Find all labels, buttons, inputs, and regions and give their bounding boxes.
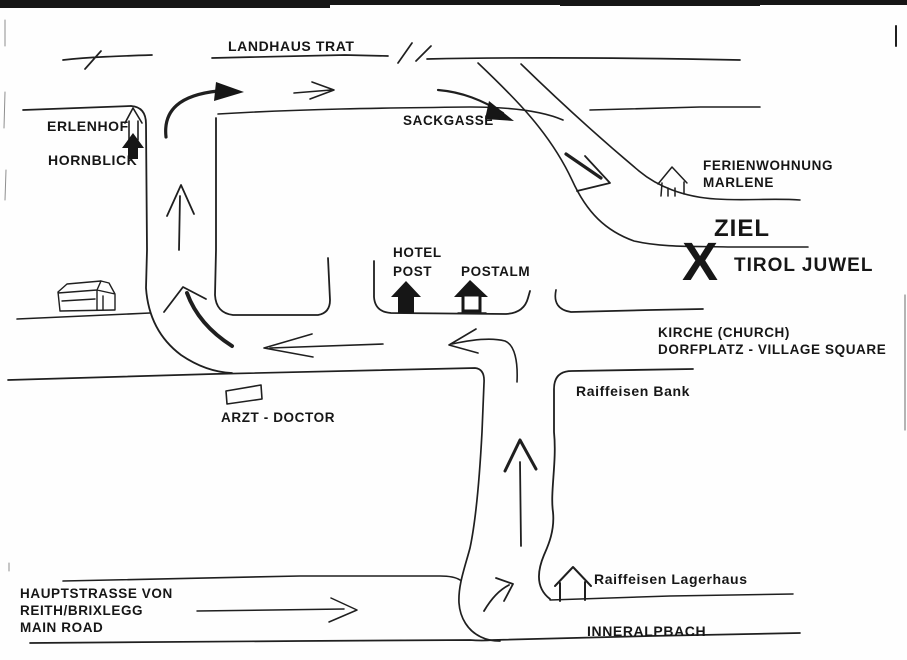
- destination-x-mark: X: [682, 232, 719, 292]
- building-icons: [58, 108, 687, 601]
- road-kirche-top-edge: [555, 290, 703, 312]
- label-sackgasse: SACKGASSE: [403, 113, 494, 128]
- label-arzt-doctor: ARZT - DOCTOR: [221, 410, 335, 425]
- road-main-top-edge: [63, 576, 460, 581]
- map-labels: LANDHAUS TRAT ERLENHOF HORNBLICK SACKGAS…: [20, 38, 886, 639]
- label-main-road: MAIN ROAD: [20, 620, 103, 635]
- label-postalm: POSTALM: [461, 264, 530, 279]
- label-dorfplatz: DORFPLATZ - VILLAGE SQUARE: [658, 342, 886, 357]
- label-ziel: ZIEL: [714, 215, 770, 242]
- arrow-south-road-up: [505, 440, 536, 546]
- road-inneralpbach-upper-edge: [550, 594, 793, 600]
- map-canvas: LANDHAUS TRAT ERLENHOF HORNBLICK SACKGAS…: [0, 0, 907, 660]
- barn-sketch-icon: [58, 281, 115, 311]
- road-middle-upper: [218, 107, 563, 120]
- road-south-road-east-edge: [539, 369, 693, 599]
- house-sketch-icon-lagerhaus: [555, 567, 591, 601]
- arrow-loop-up: [167, 185, 194, 250]
- label-kirche: KIRCHE (CHURCH): [658, 325, 790, 340]
- label-reith-brixlegg: REITH/BRIXLEGG: [20, 603, 143, 618]
- label-ferienwohnung: FERIENWOHNUNG: [703, 158, 833, 173]
- house-sketch-icon-marlene: [658, 167, 687, 196]
- label-hornblick: HORNBLICK: [48, 152, 137, 168]
- road-dorfplatz-top-west: [17, 313, 150, 319]
- arrow-loop-curve-up-bold: [164, 287, 232, 346]
- house-filled-icon-hotel-post: [391, 281, 421, 313]
- label-post: POST: [393, 264, 432, 279]
- label-hauptstrasse-von: HAUPTSTRASSE VON: [20, 586, 173, 601]
- label-tirol-juwel: TIROL JUWEL: [734, 255, 873, 276]
- road-upper-left: [23, 106, 131, 110]
- road-middle-block: [215, 118, 330, 315]
- road-upper-right: [590, 107, 760, 110]
- label-erlenhof: ERLENHOF: [47, 118, 129, 134]
- arrow-descent-southeast: [566, 154, 610, 191]
- label-raiffeisen-lagerhaus: Raiffeisen Lagerhaus: [594, 571, 748, 587]
- scan-edge-artifacts: [0, 0, 907, 571]
- road-top-landhaus-trat: [63, 43, 740, 69]
- label-raiffeisen-bank: Raiffeisen Bank: [576, 383, 690, 399]
- label-marlene: MARLENE: [703, 175, 774, 190]
- arrow-loop-top-right: [166, 82, 244, 137]
- hand-drawn-directions-map: LANDHAUS TRAT ERLENHOF HORNBLICK SACKGAS…: [0, 0, 907, 660]
- label-landhaus-trat: LANDHAUS TRAT: [228, 38, 355, 54]
- building-rect-icon-arzt: [226, 385, 262, 404]
- label-inneralpbach: INNERALPBACH: [587, 623, 706, 639]
- house-icon-postalm: [454, 280, 488, 313]
- arrow-bend-northeast: [484, 578, 513, 611]
- arrow-main-road-east: [197, 598, 357, 622]
- arrow-top-east: [294, 82, 334, 99]
- label-hotel: HOTEL: [393, 245, 442, 260]
- arrow-dorfplatz-west: [264, 334, 383, 357]
- direction-arrows: [164, 82, 610, 622]
